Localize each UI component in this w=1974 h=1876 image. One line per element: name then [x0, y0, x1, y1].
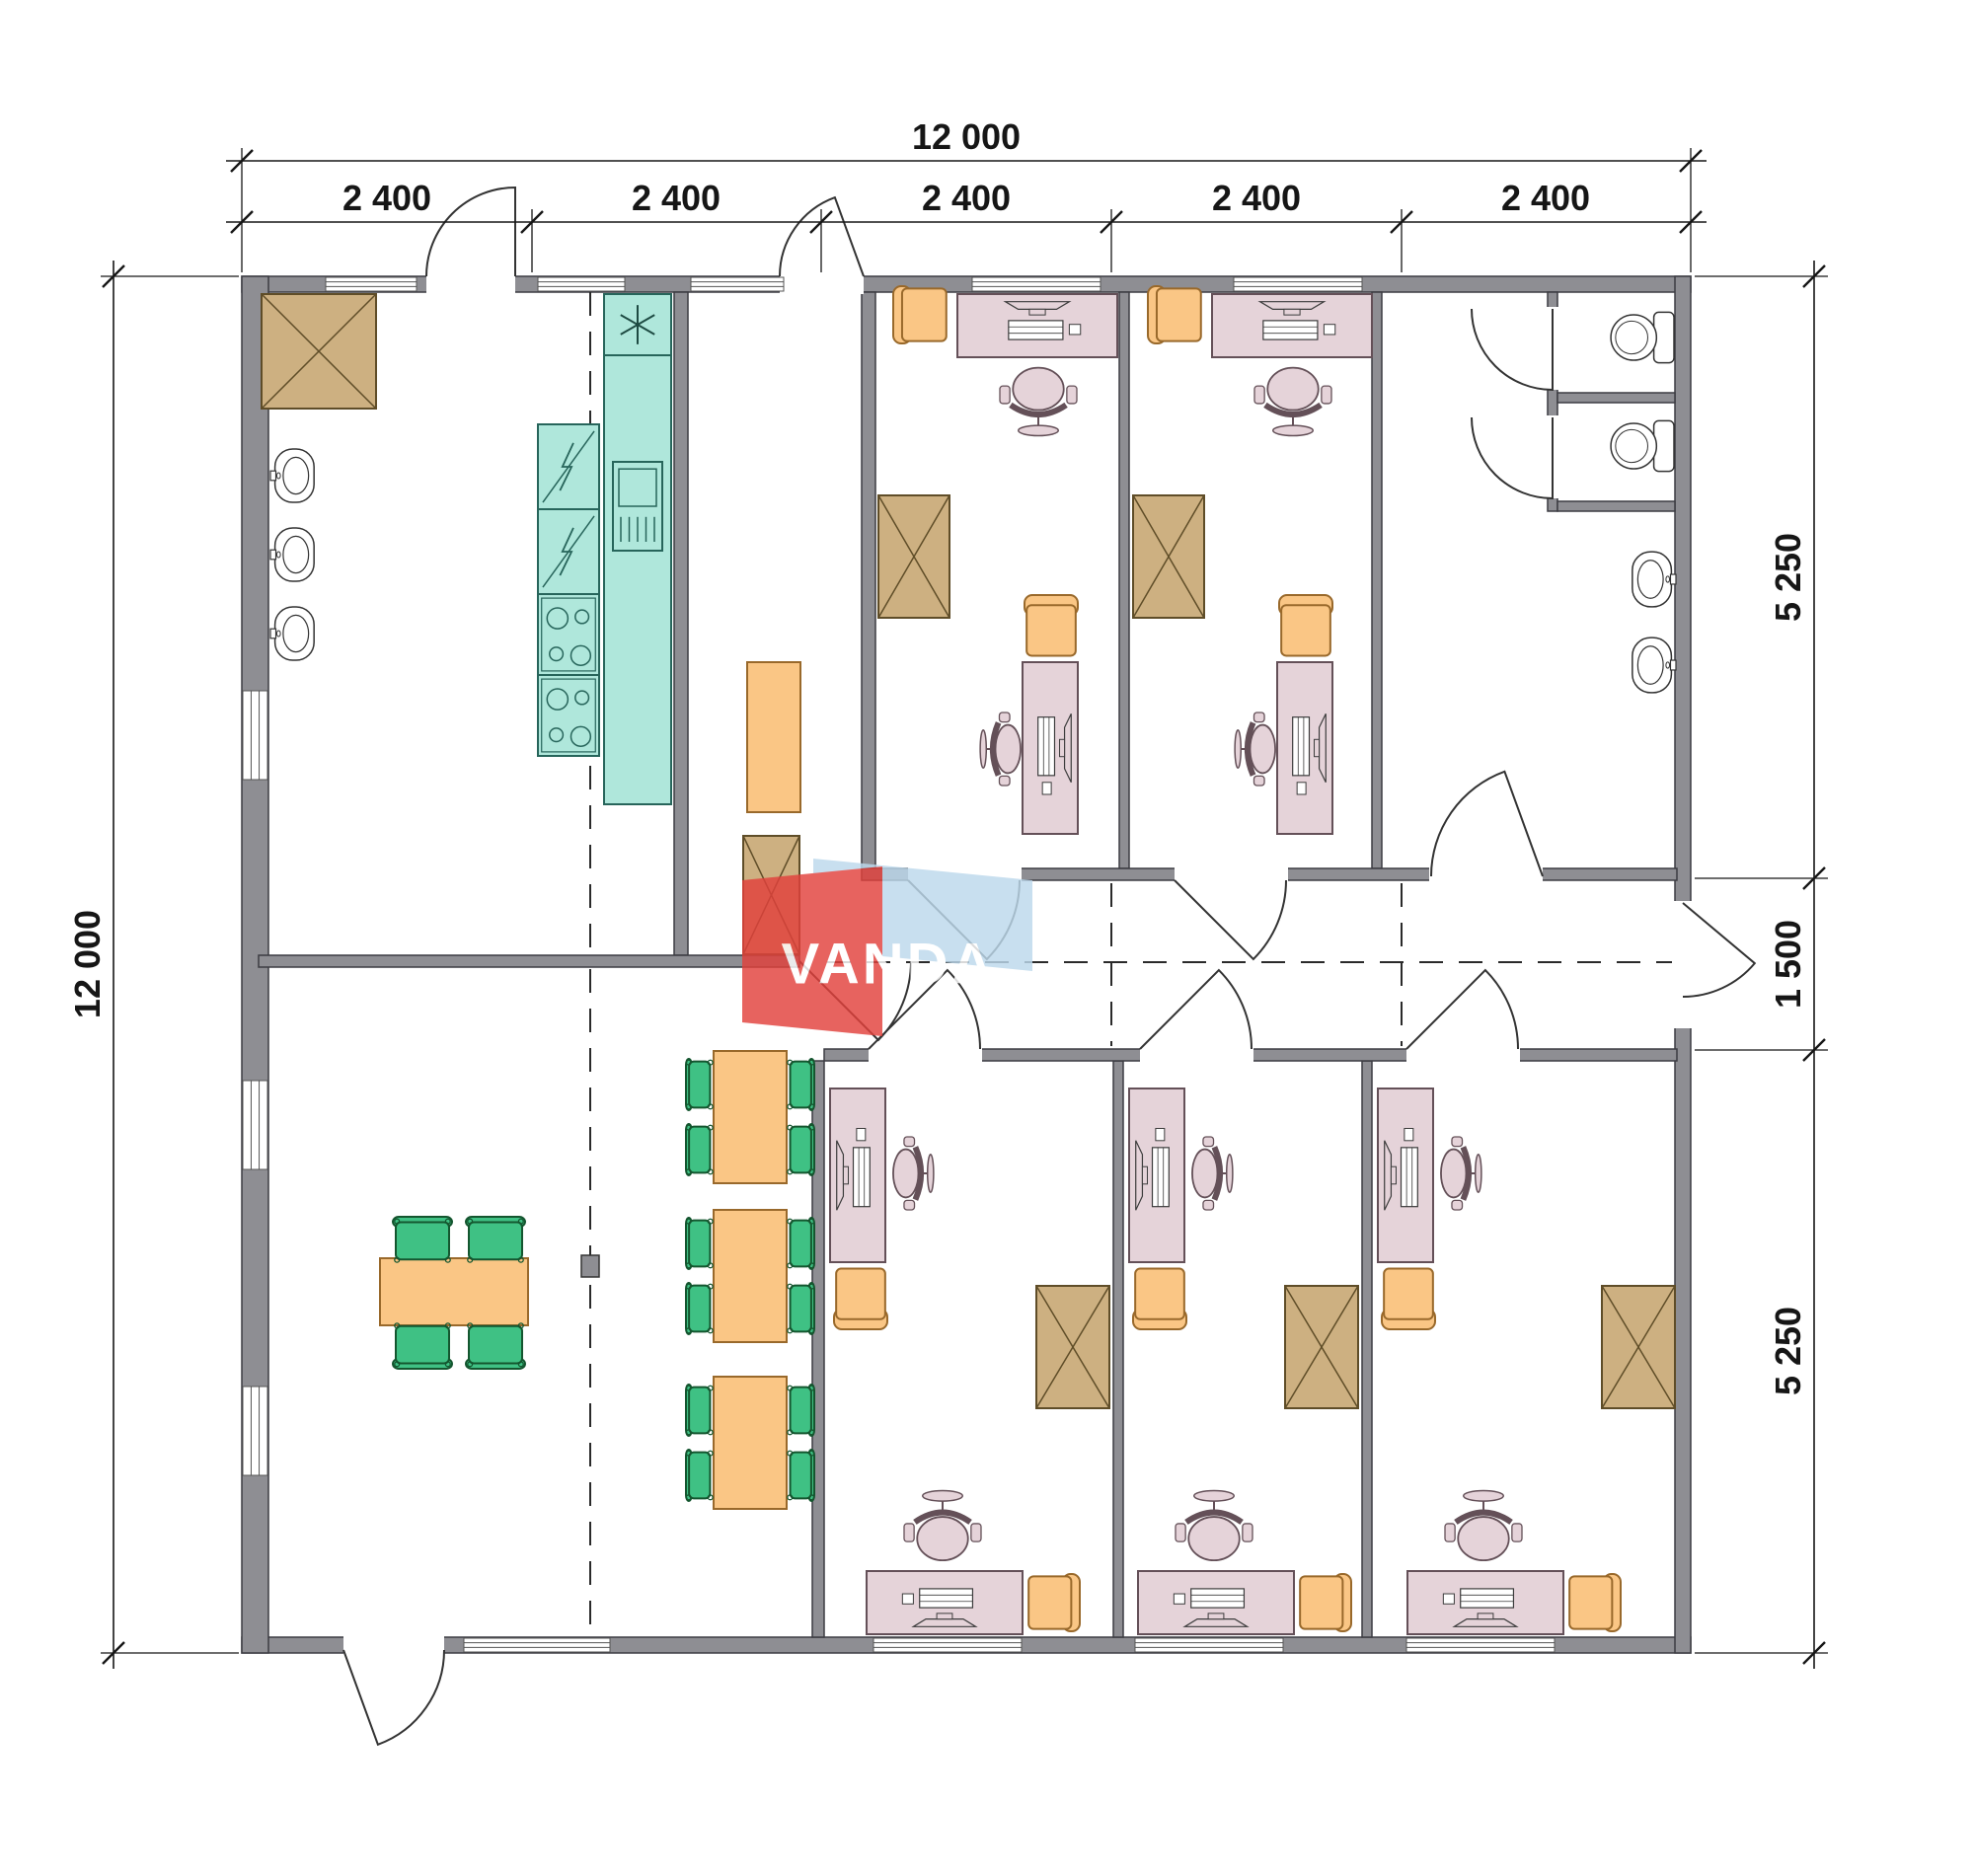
- counter-icon: [604, 355, 671, 804]
- wall: [259, 955, 799, 967]
- table-icon: [714, 1377, 787, 1509]
- gchair-icon: [393, 1323, 452, 1369]
- door-opening: [780, 274, 864, 294]
- door-opening: [1406, 1047, 1520, 1063]
- basin-icon: [1632, 638, 1676, 693]
- table-icon: [380, 1258, 528, 1325]
- window-icon: [538, 277, 625, 291]
- dimension-label: 12 000: [912, 116, 1021, 157]
- armchair-icon: [1028, 1574, 1080, 1631]
- armchair-icon: [893, 286, 947, 343]
- door-opening: [1673, 901, 1693, 1028]
- door-opening: [1140, 1047, 1253, 1063]
- desk-icon: [1407, 1571, 1563, 1634]
- armchair-icon: [1382, 1269, 1435, 1329]
- dimension-line: 5 2501 5005 250: [1768, 261, 1825, 1669]
- gchair-icon: [686, 1059, 713, 1110]
- ochair-icon: [980, 713, 1021, 786]
- wall: [1557, 393, 1675, 403]
- wardrobe-icon: [878, 495, 949, 618]
- sink-icon: [604, 294, 671, 355]
- wall: [862, 292, 875, 868]
- dimension-label: 12 000: [67, 910, 108, 1018]
- desk-icon: [830, 1088, 885, 1262]
- ochair-icon: [1000, 368, 1077, 436]
- wc-icon: [1611, 420, 1674, 471]
- dimension-label: 1 500: [1768, 920, 1808, 1009]
- wardrobe-icon: [1602, 1286, 1675, 1408]
- desk-icon: [1277, 662, 1332, 834]
- wall: [1372, 292, 1382, 868]
- dimension-label: 2 400: [922, 178, 1011, 218]
- fridge-icon: [538, 509, 599, 594]
- door-arc-icon: [1175, 880, 1286, 959]
- wardrobe-icon: [262, 294, 376, 409]
- wall: [674, 292, 688, 955]
- basin-icon: [1632, 552, 1676, 607]
- dimension-label: 2 400: [632, 178, 721, 218]
- desk-icon: [957, 294, 1117, 357]
- armchair-icon: [1025, 595, 1078, 655]
- wall: [1119, 292, 1129, 868]
- window-icon: [691, 277, 784, 291]
- module-connector: [581, 1255, 599, 1277]
- dimension-label: 2 400: [1501, 178, 1590, 218]
- fridge-icon: [538, 424, 599, 509]
- wall: [1113, 1061, 1123, 1637]
- dimension-label: 2 400: [1212, 178, 1301, 218]
- gchair-icon: [788, 1450, 814, 1501]
- door-arc-icon: [1472, 417, 1553, 498]
- ochair-icon: [893, 1137, 934, 1210]
- window-icon: [243, 1387, 267, 1475]
- door-opening: [426, 274, 515, 294]
- dimension-label: 2 400: [342, 178, 431, 218]
- dishwasher-icon: [613, 462, 662, 551]
- gchair-icon: [686, 1283, 713, 1334]
- window-icon: [464, 1638, 610, 1652]
- ochair-icon: [1176, 1490, 1253, 1560]
- window-icon: [243, 1081, 267, 1169]
- window-icon: [873, 1638, 1022, 1652]
- dimension-label: 5 250: [1768, 533, 1808, 622]
- door-arc-icon: [1472, 309, 1553, 390]
- wall: [1557, 501, 1675, 511]
- door-arc-icon: [1431, 772, 1543, 876]
- dimension-line: 12 000: [67, 261, 124, 1669]
- window-icon: [1234, 277, 1362, 291]
- ochair-icon: [1254, 368, 1331, 436]
- gchair-icon: [788, 1124, 814, 1175]
- window-icon: [972, 277, 1101, 291]
- table-icon: [714, 1210, 787, 1342]
- door-arc-icon: [343, 1650, 444, 1745]
- desk-icon: [1129, 1088, 1184, 1262]
- dimension-label: 5 250: [1768, 1307, 1808, 1395]
- armchair-icon: [1148, 286, 1201, 343]
- vanda-logo-text: VANDA: [782, 932, 996, 998]
- door-arc-icon: [1140, 970, 1252, 1049]
- ochair-icon: [1235, 713, 1275, 786]
- window-icon: [326, 277, 417, 291]
- gchair-icon: [788, 1283, 814, 1334]
- gchair-icon: [686, 1385, 713, 1436]
- armchair-icon: [834, 1269, 887, 1329]
- window-icon: [1406, 1638, 1555, 1652]
- gchair-icon: [788, 1218, 814, 1269]
- door-arc-icon: [1406, 970, 1518, 1049]
- stove-icon: [538, 675, 599, 756]
- gchair-icon: [788, 1385, 814, 1436]
- ochair-icon: [904, 1490, 981, 1560]
- desk-icon: [867, 1571, 1023, 1634]
- door-opening: [1429, 866, 1543, 882]
- floor-plan-canvas: 12 0002 4002 4002 4002 4002 40012 0005 2…: [0, 0, 1974, 1876]
- desk-icon: [1023, 662, 1078, 834]
- armchair-icon: [1569, 1574, 1621, 1631]
- stove-icon: [538, 594, 599, 675]
- desk-icon: [1138, 1571, 1294, 1634]
- gchair-icon: [788, 1059, 814, 1110]
- table-icon: [714, 1051, 787, 1183]
- dimension-line: 12 000: [226, 116, 1707, 172]
- desk-icon: [1212, 294, 1372, 357]
- window-icon: [243, 691, 267, 780]
- gchair-icon: [466, 1217, 525, 1262]
- gchair-icon: [686, 1450, 713, 1501]
- gchair-icon: [686, 1124, 713, 1175]
- basin-icon: [270, 449, 314, 502]
- basin-icon: [270, 607, 314, 660]
- basin-icon: [270, 528, 314, 581]
- wc-icon: [1611, 312, 1674, 362]
- armchair-icon: [1133, 1269, 1186, 1329]
- gchair-icon: [686, 1218, 713, 1269]
- wall: [1362, 1061, 1372, 1637]
- door-arc-icon: [426, 188, 515, 276]
- door-arc-icon: [1683, 903, 1755, 997]
- wardrobe-icon: [1133, 495, 1204, 618]
- gchair-icon: [393, 1217, 452, 1262]
- gchair-icon: [466, 1323, 525, 1369]
- armchair-icon: [1300, 1574, 1351, 1631]
- ochair-icon: [1441, 1137, 1481, 1210]
- door-opening: [1175, 866, 1288, 882]
- door-opening: [343, 1635, 444, 1655]
- armchair-icon: [1279, 595, 1332, 655]
- dimension-line: 2 4002 4002 4002 4002 400: [226, 178, 1707, 233]
- desk-icon: [1378, 1088, 1433, 1262]
- table-icon: [747, 662, 800, 812]
- vanda-logo: VANDA: [742, 851, 1034, 1040]
- window-icon: [1135, 1638, 1283, 1652]
- ochair-icon: [1445, 1490, 1522, 1560]
- wardrobe-icon: [1036, 1286, 1109, 1408]
- door-opening: [869, 1047, 982, 1063]
- wardrobe-icon: [1285, 1286, 1358, 1408]
- ochair-icon: [1192, 1137, 1233, 1210]
